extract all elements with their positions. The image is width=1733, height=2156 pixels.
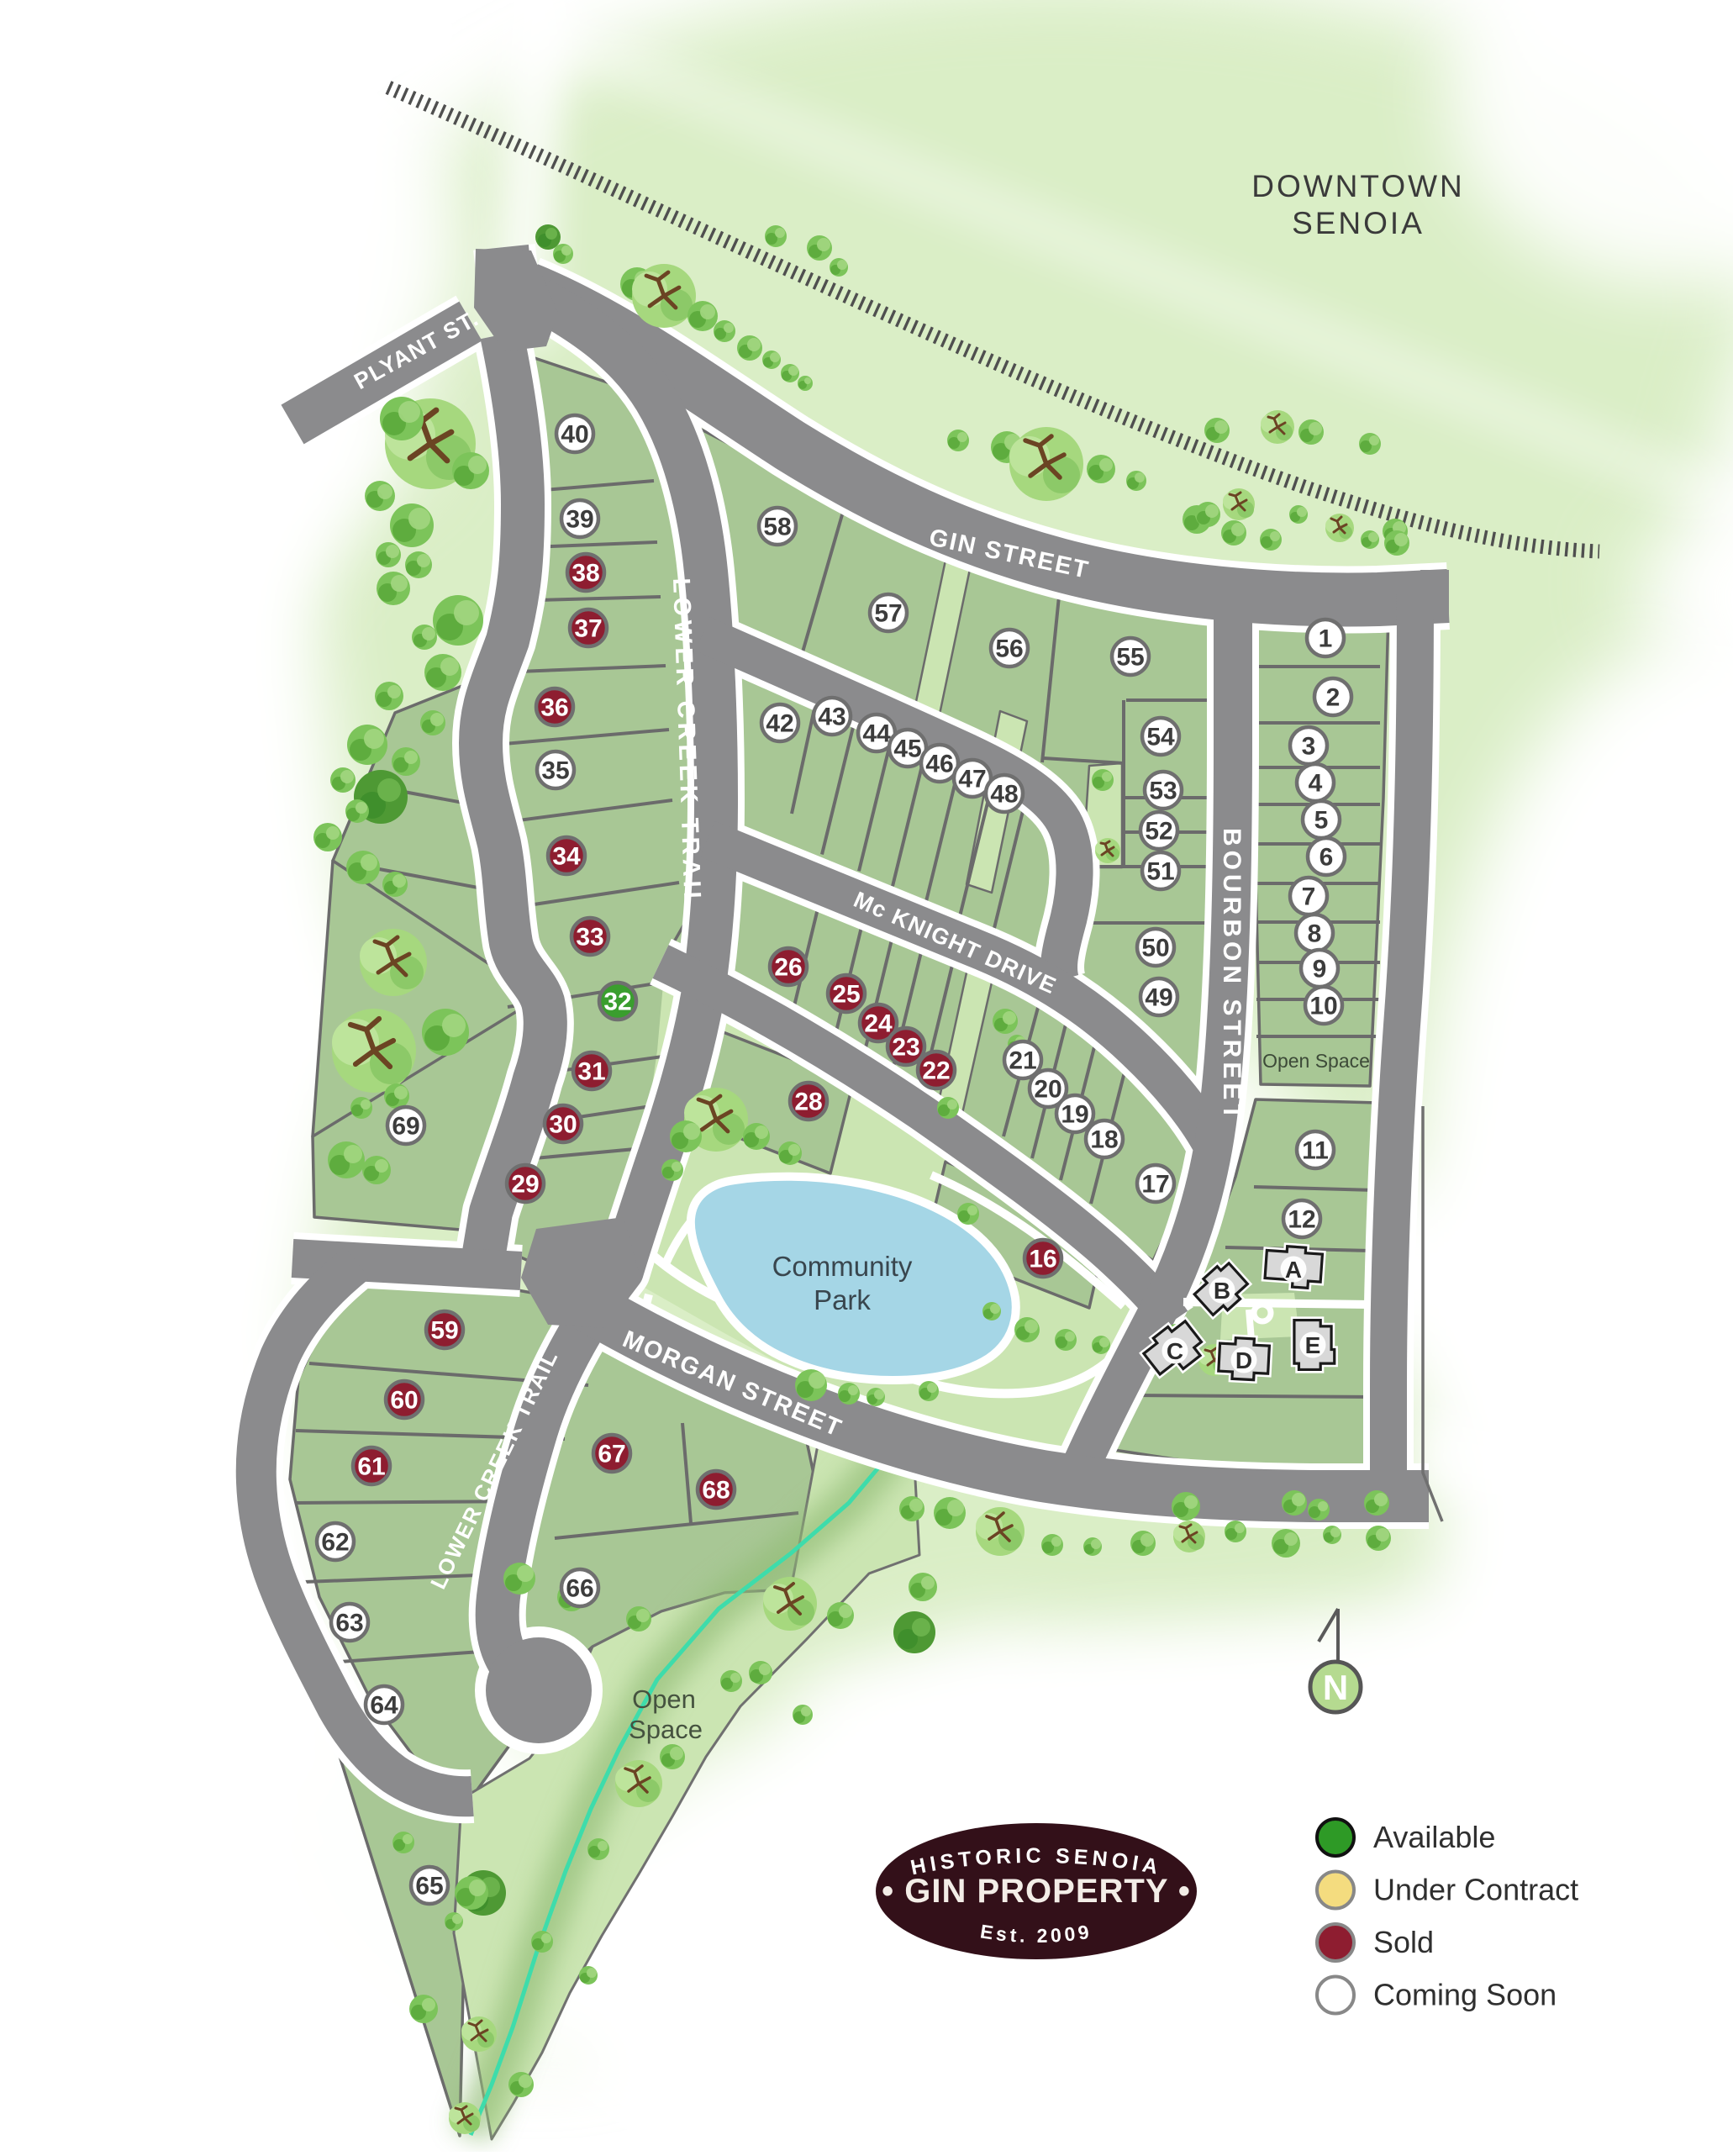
svg-text:25: 25 bbox=[832, 981, 860, 1009]
svg-text:44: 44 bbox=[862, 720, 891, 748]
svg-text:5: 5 bbox=[1314, 807, 1329, 835]
svg-text:69: 69 bbox=[392, 1113, 419, 1141]
svg-text:68: 68 bbox=[702, 1477, 730, 1505]
svg-text:64: 64 bbox=[370, 1692, 398, 1720]
svg-text:DOWNTOWN: DOWNTOWN bbox=[1251, 169, 1465, 203]
svg-text:A: A bbox=[1285, 1257, 1302, 1283]
svg-text:Coming Soon: Coming Soon bbox=[1373, 1978, 1557, 2012]
svg-text:43: 43 bbox=[818, 704, 845, 731]
svg-text:65: 65 bbox=[415, 1873, 443, 1900]
svg-text:26: 26 bbox=[774, 954, 802, 982]
svg-text:7: 7 bbox=[1302, 883, 1316, 911]
svg-text:30: 30 bbox=[549, 1111, 577, 1139]
svg-text:D: D bbox=[1235, 1347, 1252, 1373]
svg-text:11: 11 bbox=[1302, 1137, 1329, 1165]
svg-text:54: 54 bbox=[1146, 724, 1175, 751]
svg-text:63: 63 bbox=[335, 1610, 363, 1637]
svg-text:22: 22 bbox=[922, 1057, 950, 1085]
svg-text:N: N bbox=[1323, 1668, 1348, 1707]
svg-text:Park: Park bbox=[814, 1284, 871, 1315]
svg-text:Under Contract: Under Contract bbox=[1373, 1873, 1578, 1907]
svg-text:39: 39 bbox=[566, 506, 593, 534]
svg-text:33: 33 bbox=[576, 924, 603, 951]
svg-text:Open: Open bbox=[632, 1684, 696, 1714]
svg-text:67: 67 bbox=[598, 1441, 625, 1468]
svg-text:21: 21 bbox=[1009, 1047, 1036, 1075]
svg-text:6: 6 bbox=[1320, 844, 1334, 872]
svg-text:51: 51 bbox=[1146, 858, 1174, 886]
svg-text:49: 49 bbox=[1145, 984, 1172, 1012]
svg-text:47: 47 bbox=[958, 766, 986, 793]
svg-text:SENOIA: SENOIA bbox=[1292, 206, 1425, 240]
svg-text:37: 37 bbox=[574, 615, 602, 643]
svg-text:4: 4 bbox=[1309, 770, 1323, 798]
svg-text:57: 57 bbox=[874, 600, 902, 628]
svg-text:48: 48 bbox=[990, 781, 1018, 809]
svg-text:29: 29 bbox=[511, 1171, 539, 1199]
svg-text:2: 2 bbox=[1326, 684, 1341, 712]
svg-text:Sold: Sold bbox=[1373, 1925, 1434, 1959]
svg-text:32: 32 bbox=[603, 988, 631, 1016]
svg-text:20: 20 bbox=[1034, 1076, 1061, 1104]
svg-text:1: 1 bbox=[1319, 625, 1333, 653]
svg-text:61: 61 bbox=[357, 1453, 385, 1481]
svg-text:55: 55 bbox=[1116, 644, 1144, 672]
svg-text:36: 36 bbox=[540, 694, 568, 722]
svg-text:45: 45 bbox=[893, 735, 921, 763]
svg-text:C: C bbox=[1167, 1338, 1183, 1364]
svg-text:19: 19 bbox=[1061, 1101, 1088, 1129]
svg-text:59: 59 bbox=[430, 1317, 458, 1345]
svg-text:16: 16 bbox=[1029, 1246, 1056, 1273]
svg-text:Available: Available bbox=[1373, 1820, 1495, 1854]
svg-text:E: E bbox=[1305, 1332, 1321, 1358]
svg-text:35: 35 bbox=[541, 757, 569, 785]
svg-text:56: 56 bbox=[995, 635, 1023, 663]
svg-text:B: B bbox=[1214, 1278, 1230, 1304]
svg-text:• GIN PROPERTY •: • GIN PROPERTY • bbox=[882, 1873, 1191, 1910]
svg-text:Space: Space bbox=[629, 1715, 703, 1744]
svg-text:38: 38 bbox=[572, 560, 599, 588]
svg-text:Community: Community bbox=[772, 1251, 913, 1282]
svg-text:66: 66 bbox=[566, 1575, 593, 1603]
svg-text:3: 3 bbox=[1302, 733, 1316, 761]
svg-text:31: 31 bbox=[577, 1058, 605, 1086]
svg-text:60: 60 bbox=[390, 1387, 418, 1415]
svg-text:12: 12 bbox=[1288, 1206, 1315, 1234]
svg-text:46: 46 bbox=[925, 751, 953, 778]
svg-text:40: 40 bbox=[561, 421, 588, 449]
svg-text:50: 50 bbox=[1141, 935, 1169, 962]
svg-text:BOURBON STREET: BOURBON STREET bbox=[1218, 828, 1246, 1124]
svg-text:34: 34 bbox=[552, 843, 581, 871]
svg-text:28: 28 bbox=[794, 1089, 822, 1116]
svg-text:Open Space: Open Space bbox=[1262, 1050, 1370, 1072]
svg-text:53: 53 bbox=[1149, 778, 1177, 805]
svg-text:62: 62 bbox=[321, 1529, 349, 1557]
svg-text:58: 58 bbox=[763, 514, 791, 541]
svg-text:23: 23 bbox=[892, 1034, 919, 1062]
svg-text:10: 10 bbox=[1309, 993, 1337, 1020]
svg-text:8: 8 bbox=[1308, 920, 1322, 948]
svg-text:9: 9 bbox=[1313, 956, 1327, 983]
svg-text:18: 18 bbox=[1090, 1126, 1118, 1154]
svg-text:42: 42 bbox=[766, 710, 793, 738]
svg-text:52: 52 bbox=[1145, 818, 1172, 846]
svg-text:24: 24 bbox=[864, 1010, 893, 1038]
svg-text:17: 17 bbox=[1141, 1171, 1169, 1199]
